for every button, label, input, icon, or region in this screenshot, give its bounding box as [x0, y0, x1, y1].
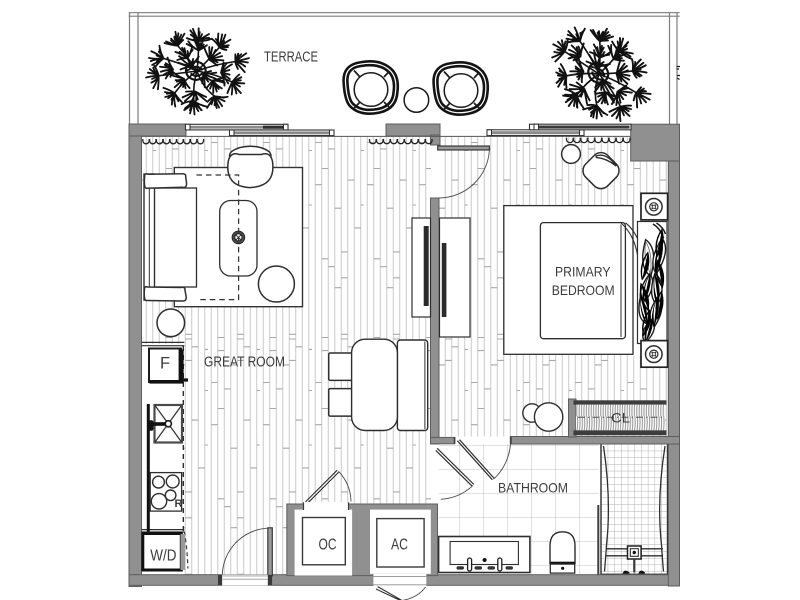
svg-text:OC: OC [319, 537, 337, 554]
svg-text:BATHROOM: BATHROOM [498, 480, 568, 496]
svg-text:R: R [175, 498, 183, 510]
svg-text:AC: AC [391, 537, 408, 554]
svg-text:W/D: W/D [150, 548, 176, 565]
svg-text:BEDROOM: BEDROOM [552, 283, 615, 298]
svg-text:GREAT ROOM: GREAT ROOM [204, 354, 285, 371]
svg-text:PRIMARY: PRIMARY [555, 264, 611, 279]
svg-text:CL: CL [611, 410, 630, 426]
svg-text:F: F [160, 355, 170, 373]
svg-text:TERRACE: TERRACE [264, 49, 318, 66]
